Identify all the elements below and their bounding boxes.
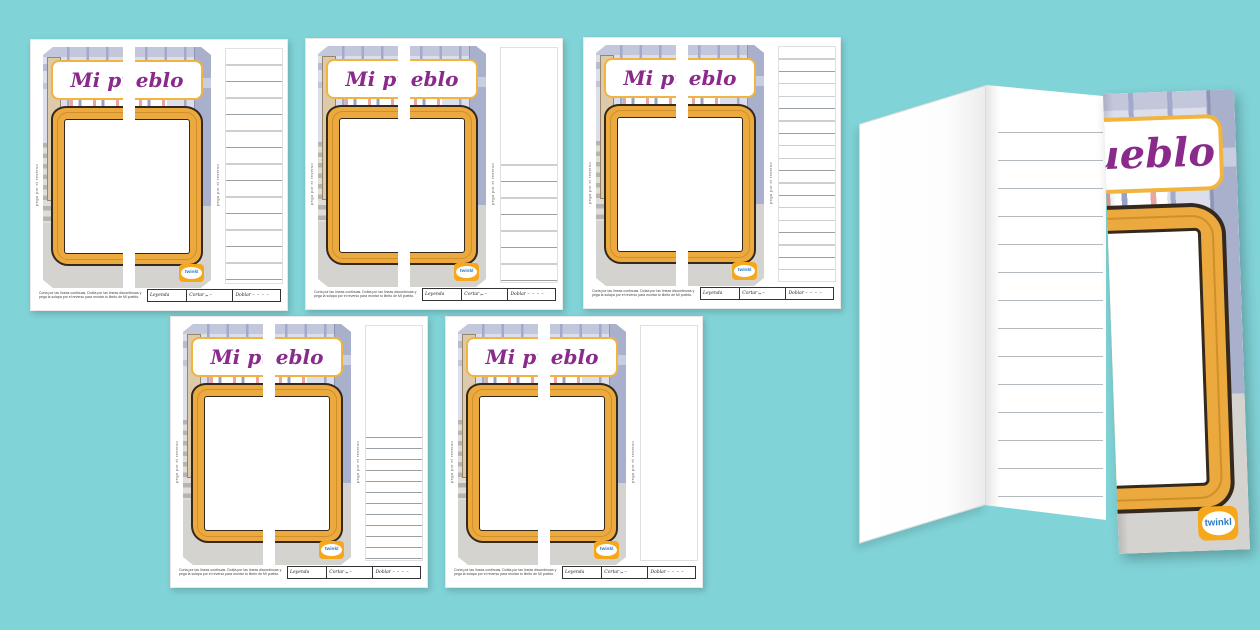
legend-cut: Cortar ✂ – [461,289,507,300]
footer-instructions: Corta por las líneas continuas. Dobla po… [39,291,143,300]
twinkl-cloud-icon: twinkl [456,266,477,278]
worksheet-thumbnail: pega por el reverso pega por el reverso … [445,316,703,588]
scissors-icon: ✂ [205,293,208,298]
booklet-title: Mi pueblo [1103,128,1216,183]
cover-section: Mi pueblo twinkl [43,47,211,288]
fold-dash-line: – – – – [392,570,409,575]
legend-title: Leyenda [148,290,186,301]
twinkl-cloud-icon: twinkl [734,265,755,277]
legend-title: Leyenda [288,567,326,578]
legend-cut: Cortar ✂ – [601,567,647,578]
writing-lines [226,49,282,283]
writing-lines-column [365,325,423,561]
booklet-lined-panel [986,85,1106,520]
twinkl-cloud-icon: twinkl [321,544,342,556]
legend-fold: Doblar – – – – [372,567,420,578]
booklet-cover-art: Mi pueblo twinkl [1103,89,1250,553]
legend-title: Leyenda [701,288,739,299]
scissors-icon: ✂ [620,570,623,575]
footer-instructions: Corta por las líneas continuas. Dobla po… [314,290,418,299]
scissors-icon: ✂ [758,291,761,296]
booklet-cover-art: Mi pueblo twinkl [318,46,486,287]
footer-instructions: Corta por las líneas continuas. Dobla po… [592,289,696,298]
cover-section: Mi pueblo twinkl [458,324,626,565]
legend-key: Leyenda Cortar ✂ – Doblar – – – – [700,287,834,300]
legend-fold: Doblar – – – – [647,567,695,578]
cover-section: Mi pueblo twinkl [596,45,764,286]
fold-line-gap [123,47,135,288]
booklet-cover-art: Mi pueblo twinkl [43,47,211,288]
fold-dash-line: – – – – [252,293,269,298]
fold-dash-line: – – – – [527,292,544,297]
glue-tab-text-right: pega por el reverso [630,407,635,517]
legend-fold: Doblar – – – – [507,289,555,300]
twinkl-logo: twinkl [732,262,757,280]
writing-lines [366,427,422,560]
twinkl-logo: twinkl [454,263,479,281]
writing-lines-column [225,48,283,284]
legend-key: Leyenda Cortar ✂ – Doblar – – – – [562,566,696,579]
glue-tab-text-right: pega por el reverso [768,128,773,238]
twinkl-logo: twinkl [1198,505,1239,541]
glue-tab-text-left: pega por el reverso [174,407,179,517]
legend-cut: Cortar ✂ – [326,567,372,578]
writing-lines [779,47,835,281]
fold-dash-line: – – – – [667,570,684,575]
folded-booklet-mockup: Mi pueblo twinkl [855,85,1250,575]
writing-lines-column [640,325,698,561]
footer-instructions: Corta por las líneas continuas. Dobla po… [179,568,283,577]
fold-line-gap [263,324,275,565]
booklet-cover-art: Mi pueblo twinkl [458,324,626,565]
writing-lines-column [500,47,558,283]
title-plate: Mi pueblo [1103,113,1224,198]
worksheet-thumbnail: pega por el reverso pega por el reverso … [30,39,288,311]
legend-key: Leyenda Cortar ✂ – Doblar – – – – [147,289,281,302]
glue-tab-text-left: pega por el reverso [449,407,454,517]
footer-instructions: Corta por las líneas continuas. Dobla po… [454,568,558,577]
worksheet-thumbnail: pega por el reverso pega por el reverso … [305,38,563,310]
resource-preview-canvas: pega por el reverso pega por el reverso … [0,0,1260,630]
booklet-writing-lines [998,105,1103,504]
glue-tab-text-left: pega por el reverso [34,130,39,240]
picture-frame [1103,202,1235,519]
twinkl-logo: twinkl [179,264,204,282]
cover-section: Mi pueblo twinkl [318,46,486,287]
fold-dash-line: – – – – [805,291,822,296]
legend-title: Leyenda [563,567,601,578]
booklet-cover-art: Mi pueblo twinkl [596,45,764,286]
legend-fold: Doblar – – – – [232,290,280,301]
glue-tab-text-left: pega por el reverso [587,128,592,238]
writing-lines [501,149,557,282]
twinkl-cloud-icon: twinkl [181,267,202,279]
legend-cut: Cortar ✂ – [186,290,232,301]
booklet-front-cover: Mi pueblo twinkl [1103,89,1250,553]
legend-key: Leyenda Cortar ✂ – Doblar – – – – [422,288,556,301]
scissors-icon: ✂ [480,292,483,297]
glue-tab-text-right: pega por el reverso [215,130,220,240]
writing-lines [641,326,697,560]
twinkl-cloud-icon: twinkl [596,544,617,556]
worksheet-thumbnail: pega por el reverso pega por el reverso … [170,316,428,588]
legend-cut: Cortar ✂ – [739,288,785,299]
cover-section: Mi pueblo twinkl [183,324,351,565]
booklet-cover-art: Mi pueblo twinkl [183,324,351,565]
fold-line-gap [538,324,550,565]
scissors-icon: ✂ [345,570,348,575]
glue-tab-text-left: pega por el reverso [309,129,314,239]
legend-fold: Doblar – – – – [785,288,833,299]
twinkl-cloud-icon: twinkl [1201,511,1235,536]
worksheet-thumbnail: pega por el reverso pega por el reverso … [583,37,841,309]
glue-tab-text-right: pega por el reverso [355,407,360,517]
glue-tab-text-right: pega por el reverso [490,129,495,239]
twinkl-logo: twinkl [319,541,344,559]
legend-key: Leyenda Cortar ✂ – Doblar – – – – [287,566,421,579]
twinkl-logo: twinkl [594,541,619,559]
booklet-back-panel [859,85,986,544]
fold-line-gap [398,46,410,287]
legend-title: Leyenda [423,289,461,300]
fold-line-gap [676,45,688,286]
writing-lines-column [778,46,836,282]
